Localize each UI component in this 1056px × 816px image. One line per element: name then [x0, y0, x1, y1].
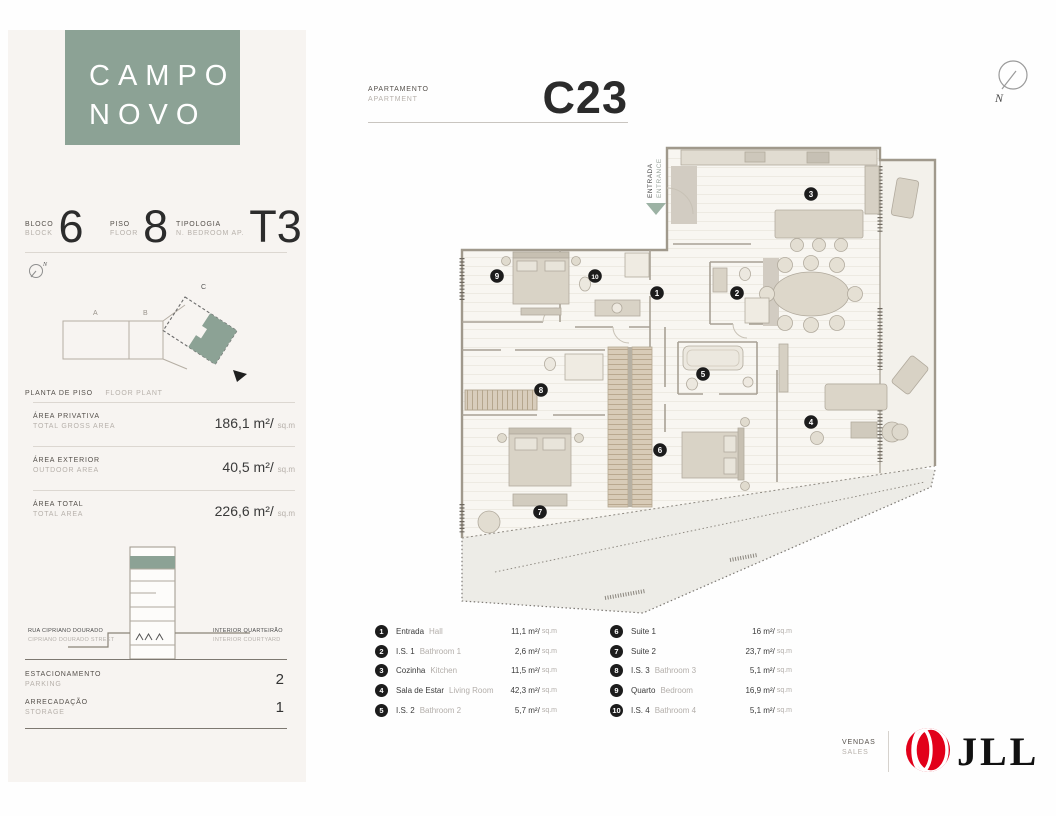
legend-area-unit: sq.m — [542, 628, 557, 635]
legend-column-2: 6Suite 116 m²/sq.m7Suite 223,7 m²/sq.m8I… — [610, 622, 792, 720]
legend-area-value: 16,9 m²/ — [745, 686, 774, 695]
legend-area-value: 5,7 m²/ — [515, 706, 540, 715]
parking-value: 2 — [276, 671, 284, 688]
sales-label-pt: VENDAS — [842, 738, 876, 748]
entrance-arrow-icon — [646, 203, 666, 215]
fact-typology: TIPOLOGIA N. BEDROOM AP. T3 — [176, 208, 302, 246]
storage-label-en: STORAGE — [25, 708, 287, 718]
room-marker-number: 2 — [735, 289, 740, 298]
floor-plan: ENTRADA ENTRANCE 12345678910 — [445, 132, 945, 622]
legend-item-8: 8I.S. 3Bathroom 35,1 m²/sq.m — [610, 661, 792, 681]
fact-label-en: FLOOR — [110, 229, 138, 239]
legend-name-en: Bedroom — [660, 686, 692, 695]
legend-area-value: 42,3 m²/ — [510, 686, 539, 695]
legend-number-badge: 4 — [375, 684, 388, 697]
legend-name-pt: I.S. 4 — [631, 706, 650, 715]
site-plan-arrow-icon — [233, 370, 247, 382]
area-label-en: TOTAL GROSS AREA — [33, 422, 115, 432]
legend-number-badge: 10 — [610, 704, 623, 717]
courtyard-label-en: INTERIOR COURTYARD — [213, 636, 303, 645]
legend-area-value: 5,1 m²/ — [750, 706, 775, 715]
area-row-total: ÁREA TOTAL TOTAL AREA 226,6 m²/ sq.m — [33, 490, 295, 535]
area-unit: sq.m — [278, 465, 295, 474]
legend-number-badge: 3 — [375, 664, 388, 677]
legend-number-badge: 9 — [610, 684, 623, 697]
legend-name-pt: Suite 2 — [631, 647, 656, 656]
core — [671, 166, 697, 224]
unit-code: C23 — [368, 72, 628, 124]
legend-number-badge: 8 — [610, 664, 623, 677]
sales-label-en: SALES — [842, 748, 876, 758]
block-label-c: C — [201, 284, 206, 291]
north-compass-icon: N — [990, 56, 1036, 108]
legend-area-unit: sq.m — [777, 667, 792, 674]
brochure-page: CAMPO NOVO BLOCO BLOCK 6 PISO FLOOR 8 TI… — [0, 0, 1056, 816]
logo-line-1: CAMPO — [89, 57, 240, 96]
logo-line-2: NOVO — [89, 96, 240, 135]
area-unit: sq.m — [278, 421, 295, 430]
legend-number-badge: 1 — [375, 625, 388, 638]
campo-novo-logo: CAMPO NOVO — [65, 30, 240, 145]
legend-name-en: Kitchen — [430, 666, 457, 675]
fact-block: BLOCO BLOCK 6 — [25, 208, 84, 246]
fact-label-pt: PISO — [110, 220, 138, 230]
room-marker-number: 10 — [591, 274, 599, 281]
area-label-en: OUTDOOR AREA — [33, 466, 100, 476]
legend-area-value: 11,1 m²/ — [511, 627, 540, 636]
area-row-private: ÁREA PRIVATIVA TOTAL GROSS AREA 186,1 m²… — [33, 402, 295, 447]
sales-label: VENDAS SALES — [842, 738, 876, 758]
fact-label-pt: TIPOLOGIA — [176, 220, 244, 230]
legend-item-1: 1EntradaHall11,1 m²/sq.m — [375, 622, 557, 642]
legend-area-unit: sq.m — [542, 648, 557, 655]
block-label-a: A — [93, 310, 98, 317]
legend-number-badge: 2 — [375, 645, 388, 658]
legend-area-unit: sq.m — [777, 648, 792, 655]
area-label-pt: ÁREA PRIVATIVA — [33, 412, 115, 422]
legend-name-pt: I.S. 1 — [396, 647, 415, 656]
room-marker-number: 4 — [809, 418, 814, 427]
area-label-pt: ÁREA TOTAL — [33, 500, 83, 510]
legend-name-pt: Suite 1 — [631, 627, 656, 636]
legend-name-pt: I.S. 2 — [396, 706, 415, 715]
header-underline — [368, 122, 628, 123]
elevation-courtyard-label: INTERIOR QUARTEIRÃO INTERIOR COURTYARD — [213, 627, 303, 645]
caption-pt: PLANTA DE PISO — [25, 390, 93, 397]
legend-name-en: Bathroom 4 — [655, 706, 696, 715]
caption-en: FLOOR PLANT — [105, 390, 162, 397]
jll-logo: JLL — [900, 720, 1050, 782]
legend-area-value: 23,7 m²/ — [745, 647, 774, 656]
fact-value-block: 6 — [59, 208, 84, 246]
street-label-en: CIPRIANO DOURADO STREET — [28, 636, 148, 645]
north-label: N — [994, 91, 1004, 105]
legend-item-4: 4Sala de EstarLiving Room42,3 m²/sq.m — [375, 681, 557, 701]
divider — [25, 252, 287, 253]
fact-label-en: BLOCK — [25, 229, 54, 239]
elevation-street-label: RUA CIPRIANO DOURADO CIPRIANO DOURADO ST… — [28, 627, 148, 645]
legend-area-unit: sq.m — [542, 707, 557, 714]
storage-label-pt: ARRECADAÇÃO — [25, 698, 287, 708]
area-unit: sq.m — [278, 509, 295, 518]
legend-name-pt: Sala de Estar — [396, 686, 444, 695]
room-marker-number: 1 — [655, 289, 660, 298]
legend-area-value: 5,1 m²/ — [750, 666, 775, 675]
legend-item-6: 6Suite 116 m²/sq.m — [610, 622, 792, 642]
room-marker-number: 8 — [539, 386, 544, 395]
fact-label-pt: BLOCO — [25, 220, 54, 230]
storage-row: ARRECADAÇÃO STORAGE 1 — [25, 698, 287, 718]
parking-label-pt: ESTACIONAMENTO — [25, 670, 287, 680]
footer-divider — [888, 731, 889, 772]
area-label-pt: ÁREA EXTERIOR — [33, 456, 100, 466]
room-marker-number: 9 — [495, 272, 500, 281]
legend-item-9: 9QuartoBedroom16,9 m²/sq.m — [610, 681, 792, 701]
entrance-label-pt: ENTRADA — [647, 163, 654, 198]
divider — [25, 659, 287, 660]
legend-area-value: 11,5 m²/ — [511, 666, 540, 675]
legend-area-unit: sq.m — [777, 707, 792, 714]
entrance-label-en: ENTRANCE — [656, 158, 663, 198]
highlighted-floor — [130, 556, 175, 569]
legend-name-pt: I.S. 3 — [631, 666, 650, 675]
divider — [25, 728, 287, 729]
legend-number-badge: 6 — [610, 625, 623, 638]
parking-row: ESTACIONAMENTO PARKING 2 — [25, 670, 287, 690]
fact-label-en: N. BEDROOM AP. — [176, 229, 244, 239]
courtyard-label-pt: INTERIOR QUARTEIRÃO — [213, 627, 303, 636]
legend-name-en: Living Room — [449, 686, 493, 695]
room-marker-number: 3 — [809, 190, 814, 199]
room-marker-number: 5 — [701, 370, 706, 379]
room-marker-number: 6 — [658, 446, 663, 455]
legend-name-en: Bathroom 2 — [420, 706, 461, 715]
legend-item-10: 10I.S. 4Bathroom 45,1 m²/sq.m — [610, 700, 792, 720]
legend-number-badge: 7 — [610, 645, 623, 658]
sidebar-panel: CAMPO NOVO BLOCO BLOCK 6 PISO FLOOR 8 TI… — [8, 30, 306, 782]
area-value: 40,5 m²/ — [222, 459, 273, 475]
block-label-b: B — [143, 310, 148, 317]
legend-item-2: 2I.S. 1Bathroom 12,6 m²/sq.m — [375, 642, 557, 662]
fact-floor: PISO FLOOR 8 — [110, 208, 168, 246]
floor-plan-caption: PLANTA DE PISO FLOOR PLANT — [25, 382, 163, 400]
legend-name-pt: Quarto — [631, 686, 655, 695]
svg-text:N: N — [42, 262, 48, 268]
legend-name-pt: Cozinha — [396, 666, 425, 675]
fact-value-typology: T3 — [249, 208, 302, 246]
legend-area-unit: sq.m — [542, 687, 557, 694]
area-row-outdoor: ÁREA EXTERIOR OUTDOOR AREA 40,5 m²/ sq.m — [33, 446, 295, 491]
legend-area-value: 16 m²/ — [752, 627, 775, 636]
storage-value: 1 — [276, 699, 284, 716]
legend-item-7: 7Suite 223,7 m²/sq.m — [610, 642, 792, 662]
parking-label-en: PARKING — [25, 680, 287, 690]
legend-name-pt: Entrada — [396, 627, 424, 636]
room-marker-number: 7 — [538, 508, 543, 517]
area-value: 186,1 m²/ — [215, 415, 274, 431]
legend-area-value: 2,6 m²/ — [515, 647, 540, 656]
area-value: 226,6 m²/ — [215, 503, 274, 519]
site-plan-diagram: A B C — [35, 275, 275, 385]
building-elevation-diagram — [30, 543, 280, 665]
legend-area-unit: sq.m — [777, 687, 792, 694]
fact-value-floor: 8 — [143, 208, 168, 246]
site-plan-block-c — [163, 297, 237, 364]
jll-wordmark: JLL — [957, 729, 1039, 774]
legend-area-unit: sq.m — [542, 667, 557, 674]
legend-column-1: 1EntradaHall11,1 m²/sq.m2I.S. 1Bathroom … — [375, 622, 557, 720]
legend-name-en: Bathroom 3 — [655, 666, 696, 675]
legend-item-3: 3CozinhaKitchen11,5 m²/sq.m — [375, 661, 557, 681]
street-label-pt: RUA CIPRIANO DOURADO — [28, 627, 148, 636]
legend-name-en: Hall — [429, 627, 443, 636]
legend-item-5: 5I.S. 2Bathroom 25,7 m²/sq.m — [375, 700, 557, 720]
legend-name-en: Bathroom 1 — [420, 647, 461, 656]
wardrobe — [608, 347, 652, 507]
legend-number-badge: 5 — [375, 704, 388, 717]
legend-area-unit: sq.m — [777, 628, 792, 635]
area-label-en: TOTAL AREA — [33, 510, 83, 520]
